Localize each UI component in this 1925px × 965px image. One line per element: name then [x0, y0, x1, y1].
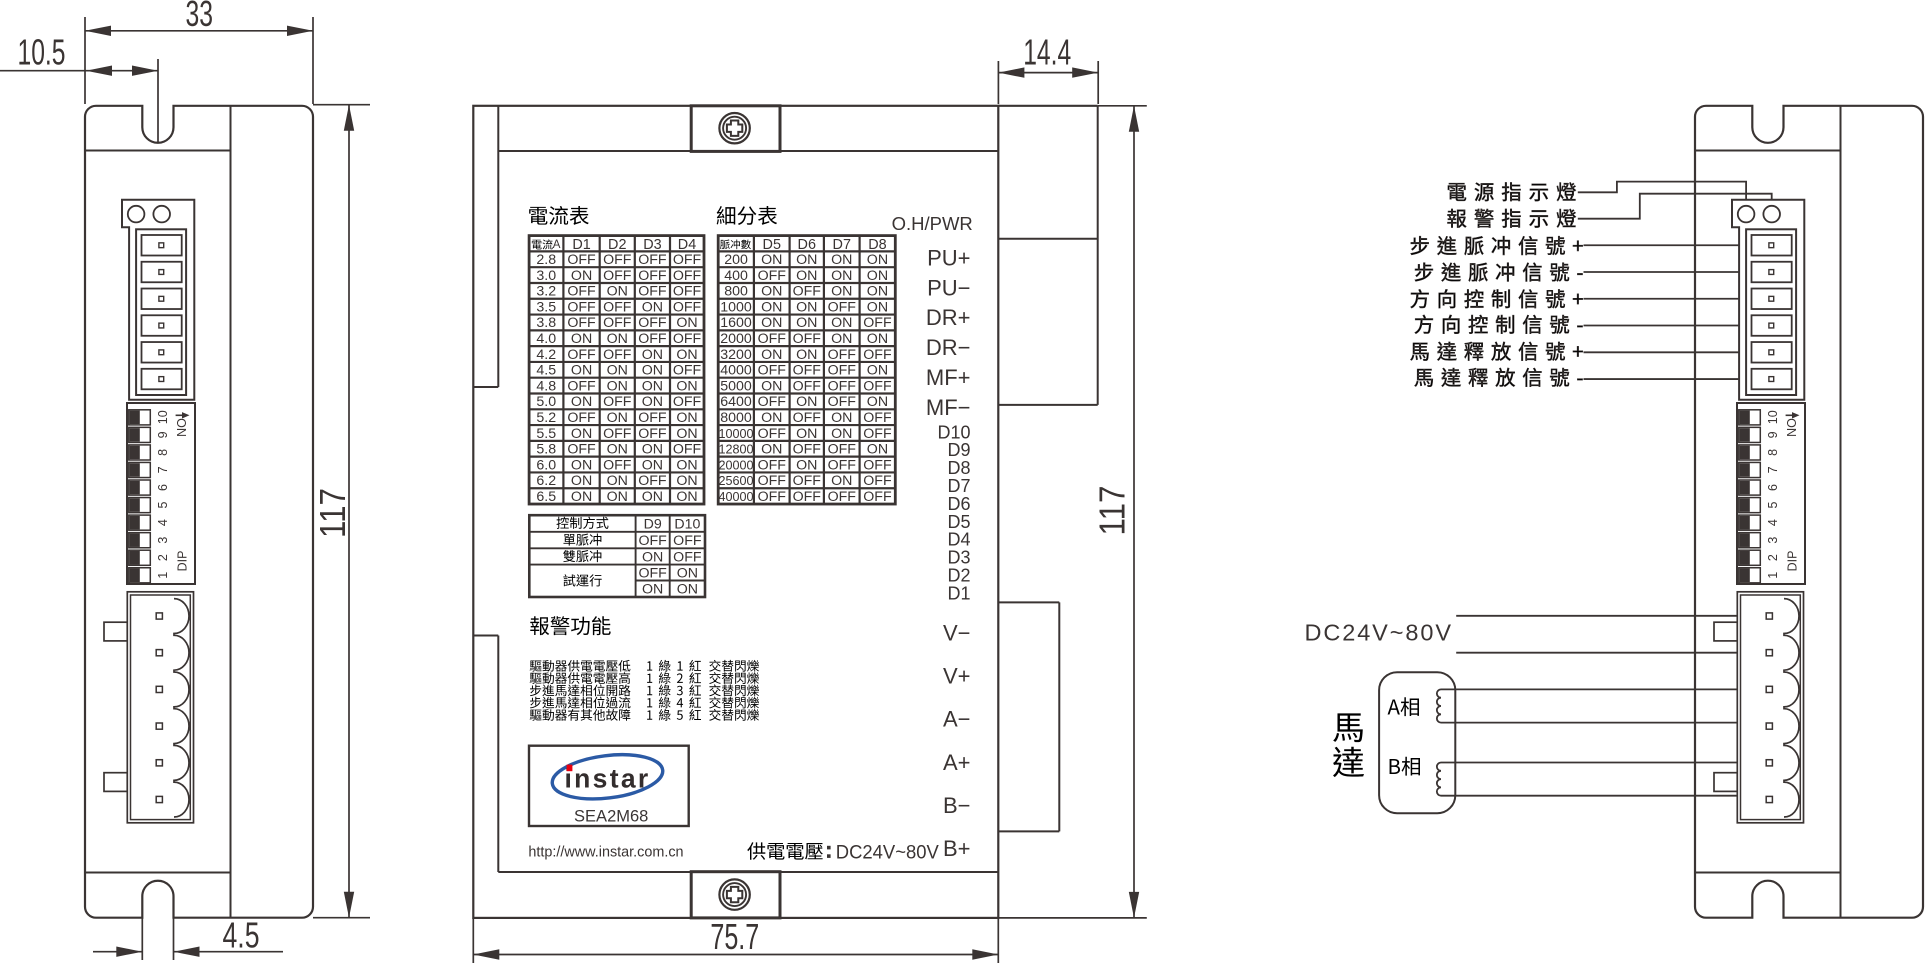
svg-text:PU−: PU− — [927, 275, 970, 300]
svg-text:ON: ON — [571, 268, 592, 284]
svg-text:ON: ON — [761, 378, 782, 394]
svg-text:3: 3 — [156, 537, 170, 544]
svg-text:PU+: PU+ — [927, 246, 970, 271]
svg-text:OFF: OFF — [863, 426, 892, 442]
svg-text:ON: ON — [607, 489, 628, 505]
svg-text:3200: 3200 — [720, 347, 752, 363]
svg-text:3.5: 3.5 — [536, 299, 556, 315]
svg-text:5: 5 — [1766, 502, 1780, 509]
svg-text:ON: ON — [174, 418, 188, 437]
svg-text:10: 10 — [1766, 410, 1780, 424]
svg-text:OFF: OFF — [863, 473, 892, 489]
svg-text:ON: ON — [831, 473, 852, 489]
svg-text:OFF: OFF — [673, 533, 702, 549]
svg-text:1: 1 — [1766, 572, 1780, 579]
svg-text:400: 400 — [724, 268, 748, 284]
svg-text:6: 6 — [156, 484, 170, 491]
svg-text:D4: D4 — [678, 237, 696, 253]
svg-text:D10: D10 — [674, 516, 700, 532]
svg-text:ON: ON — [571, 473, 592, 489]
svg-text:ON: ON — [571, 489, 592, 505]
svg-text:OFF: OFF — [793, 410, 822, 426]
svg-text:5.8: 5.8 — [536, 442, 556, 458]
svg-text:25600: 25600 — [719, 474, 754, 488]
svg-text:200: 200 — [724, 252, 748, 268]
svg-text:OFF: OFF — [758, 457, 787, 473]
svg-text:OFF: OFF — [828, 489, 857, 505]
svg-text:14.4: 14.4 — [1023, 31, 1071, 72]
svg-text:ON: ON — [761, 284, 782, 300]
svg-text:ON: ON — [642, 442, 663, 458]
svg-text:ON: ON — [761, 315, 782, 331]
svg-text:OFF: OFF — [793, 473, 822, 489]
svg-text:8: 8 — [1766, 449, 1780, 456]
svg-text:5.2: 5.2 — [536, 410, 556, 426]
svg-text:OFF: OFF — [603, 394, 632, 410]
svg-text:ON: ON — [1784, 418, 1798, 437]
svg-text:D6: D6 — [798, 237, 816, 253]
svg-text:ON: ON — [867, 268, 888, 284]
svg-text:ON: ON — [607, 473, 628, 489]
svg-text:4.2: 4.2 — [536, 347, 556, 363]
svg-text:800: 800 — [724, 284, 748, 300]
svg-text:OFF: OFF — [638, 268, 667, 284]
svg-text:ON: ON — [571, 426, 592, 442]
svg-text:ON: ON — [571, 331, 592, 347]
svg-text:OFF: OFF — [758, 394, 787, 410]
svg-text:OFF: OFF — [567, 252, 596, 268]
svg-text:3.2: 3.2 — [536, 284, 556, 300]
svg-text:ON: ON — [607, 331, 628, 347]
svg-text:1600: 1600 — [720, 315, 752, 331]
svg-text:OFF: OFF — [758, 363, 787, 379]
svg-text:12800: 12800 — [719, 443, 754, 457]
svg-text:117: 117 — [1092, 486, 1133, 536]
svg-text:ON: ON — [761, 442, 782, 458]
svg-text:DR−: DR− — [926, 335, 971, 360]
svg-text:OFF: OFF — [603, 457, 632, 473]
svg-text:OFF: OFF — [638, 565, 667, 581]
svg-text:6.0: 6.0 — [536, 457, 556, 473]
svg-text:ON: ON — [607, 442, 628, 458]
svg-text:ON: ON — [831, 268, 852, 284]
svg-text:ON: ON — [796, 299, 817, 315]
svg-text:33: 33 — [185, 0, 213, 34]
svg-text:OFF: OFF — [828, 363, 857, 379]
svg-text:ON: ON — [796, 426, 817, 442]
svg-text:ON: ON — [867, 363, 888, 379]
svg-text:ON: ON — [571, 457, 592, 473]
svg-text:20000: 20000 — [719, 458, 754, 472]
svg-text:7: 7 — [1766, 466, 1780, 473]
svg-text:ON: ON — [831, 426, 852, 442]
svg-text:ON: ON — [642, 582, 663, 598]
svg-text:3.8: 3.8 — [536, 315, 556, 331]
svg-text:4: 4 — [156, 519, 170, 526]
svg-text:ON: ON — [761, 252, 782, 268]
svg-text:3.0: 3.0 — [536, 268, 556, 284]
svg-text:OFF: OFF — [638, 533, 667, 549]
svg-text:ON: ON — [642, 363, 663, 379]
svg-text:OFF: OFF — [673, 331, 702, 347]
svg-text:1000: 1000 — [720, 299, 752, 315]
svg-text:OFF: OFF — [673, 284, 702, 300]
svg-text:ON: ON — [761, 299, 782, 315]
svg-text:DIP: DIP — [1785, 551, 1799, 572]
svg-text:D3: D3 — [643, 237, 661, 253]
svg-text:D7: D7 — [833, 237, 851, 253]
svg-text:6: 6 — [1766, 484, 1780, 491]
svg-text:OFF: OFF — [758, 268, 787, 284]
svg-text:ON: ON — [677, 565, 698, 581]
svg-text:OFF: OFF — [603, 299, 632, 315]
svg-text:1: 1 — [156, 572, 170, 579]
svg-text:A+: A+ — [943, 750, 971, 775]
svg-text:ON: ON — [796, 347, 817, 363]
svg-text:A−: A− — [943, 707, 971, 732]
svg-text:10.5: 10.5 — [18, 32, 66, 73]
svg-text:ON: ON — [676, 378, 697, 394]
svg-text:ON: ON — [867, 284, 888, 300]
svg-text:ON: ON — [676, 347, 697, 363]
svg-text:2.8: 2.8 — [536, 252, 556, 268]
svg-text:OFF: OFF — [603, 347, 632, 363]
svg-text:OFF: OFF — [793, 284, 822, 300]
svg-text:ON: ON — [831, 252, 852, 268]
svg-text:4000: 4000 — [720, 363, 752, 379]
svg-text:ON: ON — [831, 410, 852, 426]
svg-text:B−: B− — [943, 793, 971, 818]
svg-text:3: 3 — [1766, 537, 1780, 544]
svg-text:ON: ON — [642, 549, 663, 565]
svg-text:D1: D1 — [947, 583, 970, 603]
svg-text:2: 2 — [1766, 554, 1780, 561]
svg-text:OFF: OFF — [828, 394, 857, 410]
svg-text:OFF: OFF — [828, 299, 857, 315]
svg-text:ON: ON — [796, 394, 817, 410]
svg-text:9: 9 — [1766, 431, 1780, 438]
svg-text:ON: ON — [676, 426, 697, 442]
svg-text:OFF: OFF — [673, 299, 702, 315]
svg-text:ON: ON — [831, 284, 852, 300]
svg-text:D2: D2 — [608, 237, 626, 253]
svg-text:OFF: OFF — [567, 378, 596, 394]
svg-text:OFF: OFF — [793, 489, 822, 505]
svg-text:ON: ON — [676, 489, 697, 505]
svg-text:ON: ON — [676, 473, 697, 489]
svg-text:75.7: 75.7 — [710, 916, 759, 957]
svg-text:4.0: 4.0 — [536, 331, 556, 347]
svg-text:ON: ON — [607, 363, 628, 379]
svg-text:OFF: OFF — [758, 426, 787, 442]
svg-text:ON: ON — [642, 394, 663, 410]
svg-text:9: 9 — [156, 431, 170, 438]
svg-text:10000: 10000 — [719, 427, 754, 441]
svg-text:5.5: 5.5 — [536, 426, 556, 442]
svg-text:OFF: OFF — [567, 315, 596, 331]
svg-text:10: 10 — [156, 410, 170, 424]
svg-text:OFF: OFF — [603, 426, 632, 442]
svg-text:ON: ON — [867, 442, 888, 458]
svg-text:ON: ON — [642, 457, 663, 473]
svg-text:MF−: MF− — [926, 395, 971, 420]
svg-text:OFF: OFF — [567, 284, 596, 300]
svg-text:http://www.instar.com.cn: http://www.instar.com.cn — [528, 845, 683, 861]
svg-text:40000: 40000 — [719, 490, 754, 504]
svg-text:OFF: OFF — [638, 252, 667, 268]
svg-text:ON: ON — [642, 299, 663, 315]
svg-text:OFF: OFF — [638, 315, 667, 331]
svg-text:OFF: OFF — [863, 489, 892, 505]
svg-text:OFF: OFF — [793, 363, 822, 379]
svg-text:4.8: 4.8 — [536, 378, 556, 394]
svg-text:ON: ON — [571, 363, 592, 379]
svg-text:ON: ON — [796, 268, 817, 284]
svg-text:ON: ON — [867, 299, 888, 315]
svg-text:ON: ON — [867, 394, 888, 410]
svg-text:MF+: MF+ — [926, 365, 971, 390]
svg-text:ON: ON — [642, 489, 663, 505]
svg-text:DC24V~80V: DC24V~80V — [1305, 620, 1453, 646]
svg-text:OFF: OFF — [638, 284, 667, 300]
svg-text:ON: ON — [642, 347, 663, 363]
svg-text:OFF: OFF — [793, 442, 822, 458]
svg-text:OFF: OFF — [638, 426, 667, 442]
svg-text:OFF: OFF — [758, 473, 787, 489]
svg-text:DC24V~80V: DC24V~80V — [836, 842, 939, 863]
svg-text:OFF: OFF — [793, 378, 822, 394]
svg-text:OFF: OFF — [828, 457, 857, 473]
svg-text:ON: ON — [677, 582, 698, 598]
svg-text:OFF: OFF — [638, 410, 667, 426]
svg-text:OFF: OFF — [863, 457, 892, 473]
svg-text:4.5: 4.5 — [223, 915, 260, 956]
svg-text:A: A — [553, 239, 561, 251]
svg-text:D9: D9 — [644, 516, 662, 532]
svg-text:OFF: OFF — [603, 268, 632, 284]
svg-text:5.0: 5.0 — [536, 394, 556, 410]
svg-text:SEA2M68: SEA2M68 — [574, 808, 648, 826]
svg-text:6400: 6400 — [720, 394, 752, 410]
svg-text:OFF: OFF — [567, 347, 596, 363]
svg-text:ON: ON — [571, 394, 592, 410]
svg-text:OFF: OFF — [567, 299, 596, 315]
svg-text:OFF: OFF — [863, 410, 892, 426]
svg-text:OFF: OFF — [673, 549, 702, 565]
svg-text:ON: ON — [607, 410, 628, 426]
svg-text:V+: V+ — [943, 664, 971, 689]
svg-text:ON: ON — [796, 457, 817, 473]
svg-text:5: 5 — [156, 502, 170, 509]
svg-text:instar: instar — [565, 764, 651, 794]
svg-text:O.H/PWR: O.H/PWR — [892, 213, 973, 234]
svg-text:8: 8 — [156, 449, 170, 456]
svg-text:OFF: OFF — [567, 410, 596, 426]
svg-text:ON: ON — [761, 410, 782, 426]
svg-text:OFF: OFF — [603, 252, 632, 268]
svg-text:ON: ON — [676, 410, 697, 426]
svg-text:4.5: 4.5 — [536, 363, 556, 379]
svg-text:OFF: OFF — [863, 347, 892, 363]
svg-text:ON: ON — [607, 284, 628, 300]
svg-text:D5: D5 — [763, 237, 781, 253]
svg-text:OFF: OFF — [828, 442, 857, 458]
svg-text:DR+: DR+ — [926, 305, 971, 330]
svg-text:OFF: OFF — [673, 252, 702, 268]
svg-text:8000: 8000 — [720, 410, 752, 426]
svg-text:OFF: OFF — [863, 315, 892, 331]
svg-text:5000: 5000 — [720, 378, 752, 394]
svg-text:OFF: OFF — [638, 473, 667, 489]
svg-text:2: 2 — [156, 554, 170, 561]
svg-text:ON: ON — [676, 315, 697, 331]
svg-text:2000: 2000 — [720, 331, 752, 347]
svg-text:D8: D8 — [868, 237, 886, 253]
svg-text:ON: ON — [796, 252, 817, 268]
svg-text:OFF: OFF — [828, 378, 857, 394]
svg-text:4: 4 — [1766, 519, 1780, 526]
svg-text:ON: ON — [607, 378, 628, 394]
svg-text:ON: ON — [867, 331, 888, 347]
svg-text:V−: V− — [943, 621, 971, 646]
svg-text:ON: ON — [642, 378, 663, 394]
svg-text:117: 117 — [312, 488, 353, 538]
svg-text:ON: ON — [867, 252, 888, 268]
svg-text:6.5: 6.5 — [536, 489, 556, 505]
svg-text:OFF: OFF — [603, 315, 632, 331]
svg-text:OFF: OFF — [758, 331, 787, 347]
svg-text:OFF: OFF — [863, 378, 892, 394]
svg-text:OFF: OFF — [638, 331, 667, 347]
svg-text:ON: ON — [676, 457, 697, 473]
svg-text:OFF: OFF — [758, 489, 787, 505]
svg-text:DIP: DIP — [175, 551, 189, 572]
svg-text:OFF: OFF — [673, 442, 702, 458]
svg-text:ON: ON — [831, 315, 852, 331]
svg-text:ON: ON — [761, 347, 782, 363]
svg-text:OFF: OFF — [793, 331, 822, 347]
svg-text:OFF: OFF — [673, 363, 702, 379]
svg-text:OFF: OFF — [673, 268, 702, 284]
svg-text:6.2: 6.2 — [536, 473, 556, 489]
svg-text:7: 7 — [156, 466, 170, 473]
svg-text:ON: ON — [796, 315, 817, 331]
svg-text:B+: B+ — [943, 836, 971, 861]
svg-text:OFF: OFF — [673, 394, 702, 410]
svg-text:D1: D1 — [572, 237, 590, 253]
svg-text:OFF: OFF — [567, 442, 596, 458]
svg-text:OFF: OFF — [828, 347, 857, 363]
svg-text:ON: ON — [831, 331, 852, 347]
